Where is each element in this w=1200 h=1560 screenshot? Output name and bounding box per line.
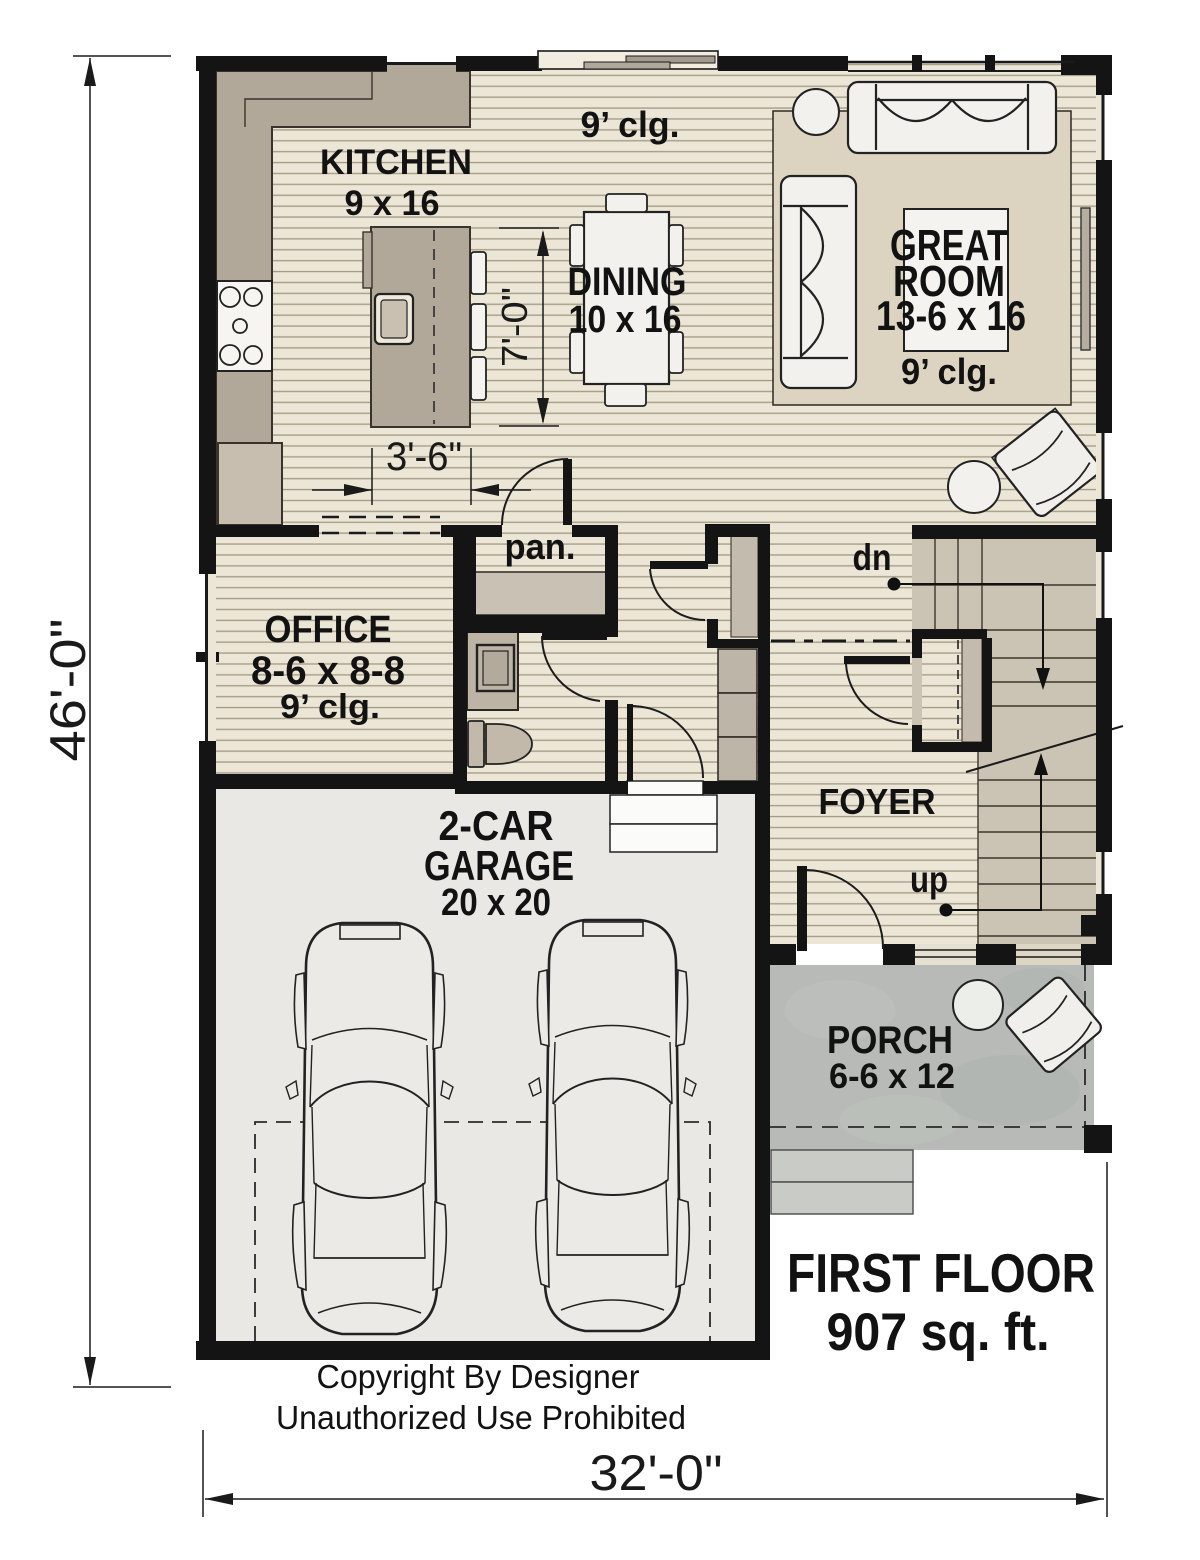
svg-text:OFFICE: OFFICE: [265, 609, 392, 651]
svg-text:9’ clg.: 9’ clg.: [280, 688, 380, 726]
svg-text:pan.: pan.: [505, 526, 576, 567]
svg-text:7'-0": 7'-0": [494, 287, 535, 367]
svg-text:3'-6": 3'-6": [386, 435, 462, 479]
svg-text:10 x 16: 10 x 16: [569, 299, 682, 341]
svg-text:13-6 x 16: 13-6 x 16: [876, 292, 1026, 339]
svg-text:8-6 x 8-8: 8-6 x 8-8: [251, 649, 405, 693]
svg-text:32'-0": 32'-0": [590, 1445, 723, 1501]
svg-text:dn: dn: [853, 537, 892, 578]
svg-text:9’ clg.: 9’ clg.: [901, 351, 997, 392]
svg-text:907 sq. ft.: 907 sq. ft.: [827, 1303, 1050, 1362]
svg-text:Unauthorized Use Prohibited: Unauthorized Use Prohibited: [276, 1399, 686, 1436]
svg-text:DINING: DINING: [568, 260, 687, 304]
svg-text:46'-0": 46'-0": [40, 619, 96, 762]
svg-text:PORCH: PORCH: [827, 1019, 953, 1062]
svg-text:9’ clg.: 9’ clg.: [581, 104, 680, 145]
svg-text:20 x 20: 20 x 20: [441, 882, 551, 924]
svg-text:Copyright By Designer: Copyright By Designer: [317, 1358, 640, 1395]
svg-text:FIRST FLOOR: FIRST FLOOR: [787, 1242, 1095, 1304]
svg-text:FOYER: FOYER: [819, 781, 936, 822]
svg-text:6-6 x 12: 6-6 x 12: [829, 1057, 955, 1096]
svg-text:KITCHEN: KITCHEN: [320, 143, 472, 182]
svg-text:9 x 16: 9 x 16: [345, 184, 440, 223]
svg-text:up: up: [910, 859, 948, 900]
